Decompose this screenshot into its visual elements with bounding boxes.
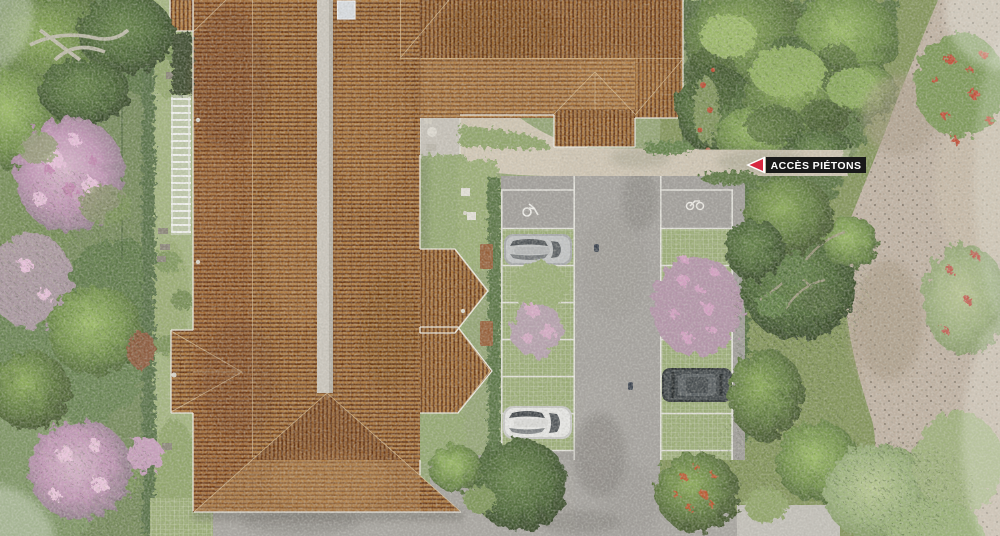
svg-text:ACCÈS PIÉTONS: ACCÈS PIÉTONS (771, 159, 862, 172)
